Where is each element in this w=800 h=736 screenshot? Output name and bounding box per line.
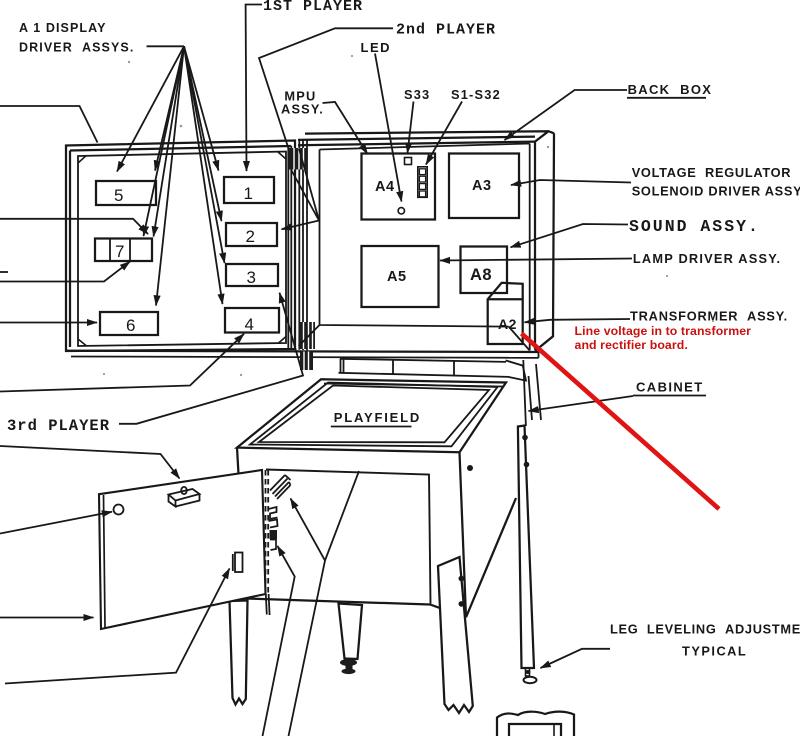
svg-text:5: 5: [114, 186, 123, 205]
svg-text:4: 4: [245, 315, 254, 334]
svg-text:VOLTAGE REGULATOR: VOLTAGE REGULATOR: [632, 165, 792, 180]
svg-text:1: 1: [244, 184, 253, 203]
svg-text:LED: LED: [361, 40, 392, 55]
svg-text:ASSY.: ASSY.: [281, 102, 324, 117]
svg-text:LAMP DRIVER ASSY.: LAMP DRIVER ASSY.: [633, 251, 781, 266]
svg-text:SOUND ASSY.: SOUND ASSY.: [629, 217, 760, 236]
svg-text:A3: A3: [472, 178, 492, 194]
svg-text:2nd PLAYER: 2nd PLAYER: [396, 22, 496, 39]
svg-text:A8: A8: [470, 266, 492, 284]
svg-text:DRIVER ASSYS.: DRIVER ASSYS.: [19, 41, 134, 55]
svg-text:S33: S33: [404, 87, 430, 102]
svg-text:SOLENOID DRIVER ASSY: SOLENOID DRIVER ASSY: [632, 184, 800, 199]
svg-text:3: 3: [247, 268, 256, 287]
svg-text:3rd PLAYER: 3rd PLAYER: [7, 417, 110, 435]
svg-text:6: 6: [126, 316, 135, 335]
svg-text:TRANSFORMER ASSY.: TRANSFORMER ASSY.: [630, 309, 788, 324]
svg-text:S1-S32: S1-S32: [451, 87, 501, 102]
svg-text:PLAYFIELD: PLAYFIELD: [334, 410, 421, 425]
svg-text:A2: A2: [498, 316, 517, 332]
svg-text:LEG LEVELING ADJUSTMENT: LEG LEVELING ADJUSTMENT: [610, 622, 800, 637]
svg-text:TYPICAL: TYPICAL: [682, 644, 747, 659]
svg-text:A4: A4: [375, 179, 395, 195]
svg-text:Line voltage in to transformer: Line voltage in to transformer: [575, 324, 752, 338]
svg-text:2: 2: [246, 227, 255, 246]
svg-text:A 1 DISPLAY: A 1 DISPLAY: [19, 21, 107, 35]
svg-text:and rectifier board.: and rectifier board.: [575, 338, 688, 352]
svg-text:7: 7: [115, 242, 124, 261]
svg-text:1ST PLAYER: 1ST PLAYER: [263, 0, 363, 15]
svg-text:CABINET: CABINET: [636, 380, 704, 395]
svg-text:BACK BOX: BACK BOX: [628, 82, 713, 97]
svg-text:A5: A5: [387, 269, 407, 285]
